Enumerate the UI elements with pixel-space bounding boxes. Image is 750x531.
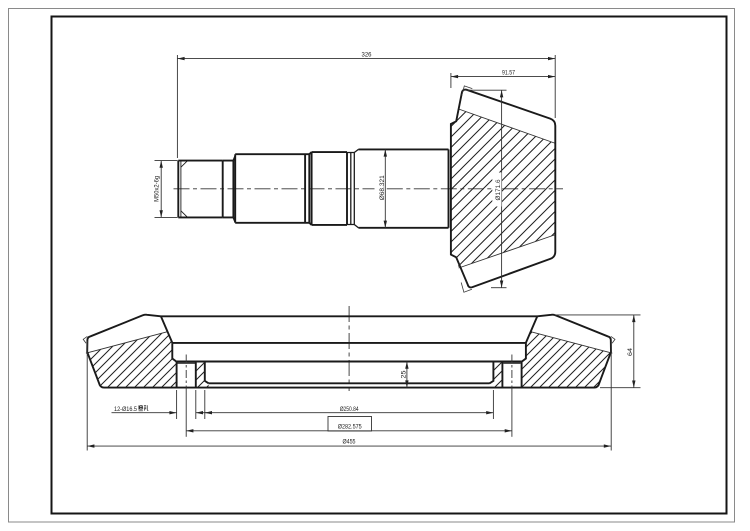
svg-text:Ø171.6: Ø171.6 — [495, 179, 502, 200]
svg-text:Ø455: Ø455 — [343, 439, 356, 446]
svg-text:M50x2-6g: M50x2-6g — [153, 176, 160, 202]
svg-text:Ø250.84: Ø250.84 — [340, 406, 359, 413]
svg-text:Ø282.575: Ø282.575 — [338, 423, 362, 430]
svg-text:64: 64 — [627, 348, 634, 356]
svg-text:91.57: 91.57 — [502, 70, 515, 77]
svg-text:Ø68.321: Ø68.321 — [379, 175, 386, 200]
svg-text:25: 25 — [400, 370, 407, 378]
svg-text:12-Ø16.5: 12-Ø16.5 — [114, 406, 137, 413]
svg-text:326: 326 — [362, 52, 372, 59]
